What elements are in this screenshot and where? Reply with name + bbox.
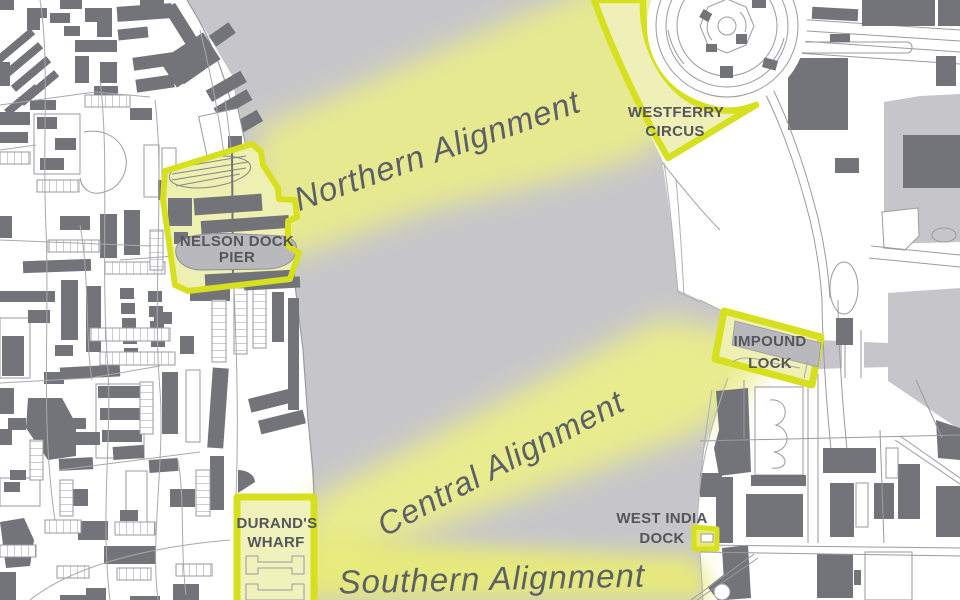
svg-text:Southern Alignment: Southern Alignment [338, 557, 646, 600]
svg-text:DURAND'S: DURAND'S [237, 515, 318, 532]
svg-text:PIER: PIER [219, 249, 255, 266]
svg-text:DOCK: DOCK [639, 530, 684, 547]
svg-text:NELSON DOCK: NELSON DOCK [180, 233, 294, 250]
svg-text:WESTFERRY: WESTFERRY [628, 104, 724, 121]
svg-text:LOCK: LOCK [748, 355, 792, 372]
svg-text:WHARF: WHARF [247, 534, 304, 551]
svg-text:CIRCUS: CIRCUS [645, 123, 704, 140]
svg-text:WEST INDIA: WEST INDIA [616, 510, 707, 527]
svg-text:IMPOUND: IMPOUND [734, 333, 807, 350]
